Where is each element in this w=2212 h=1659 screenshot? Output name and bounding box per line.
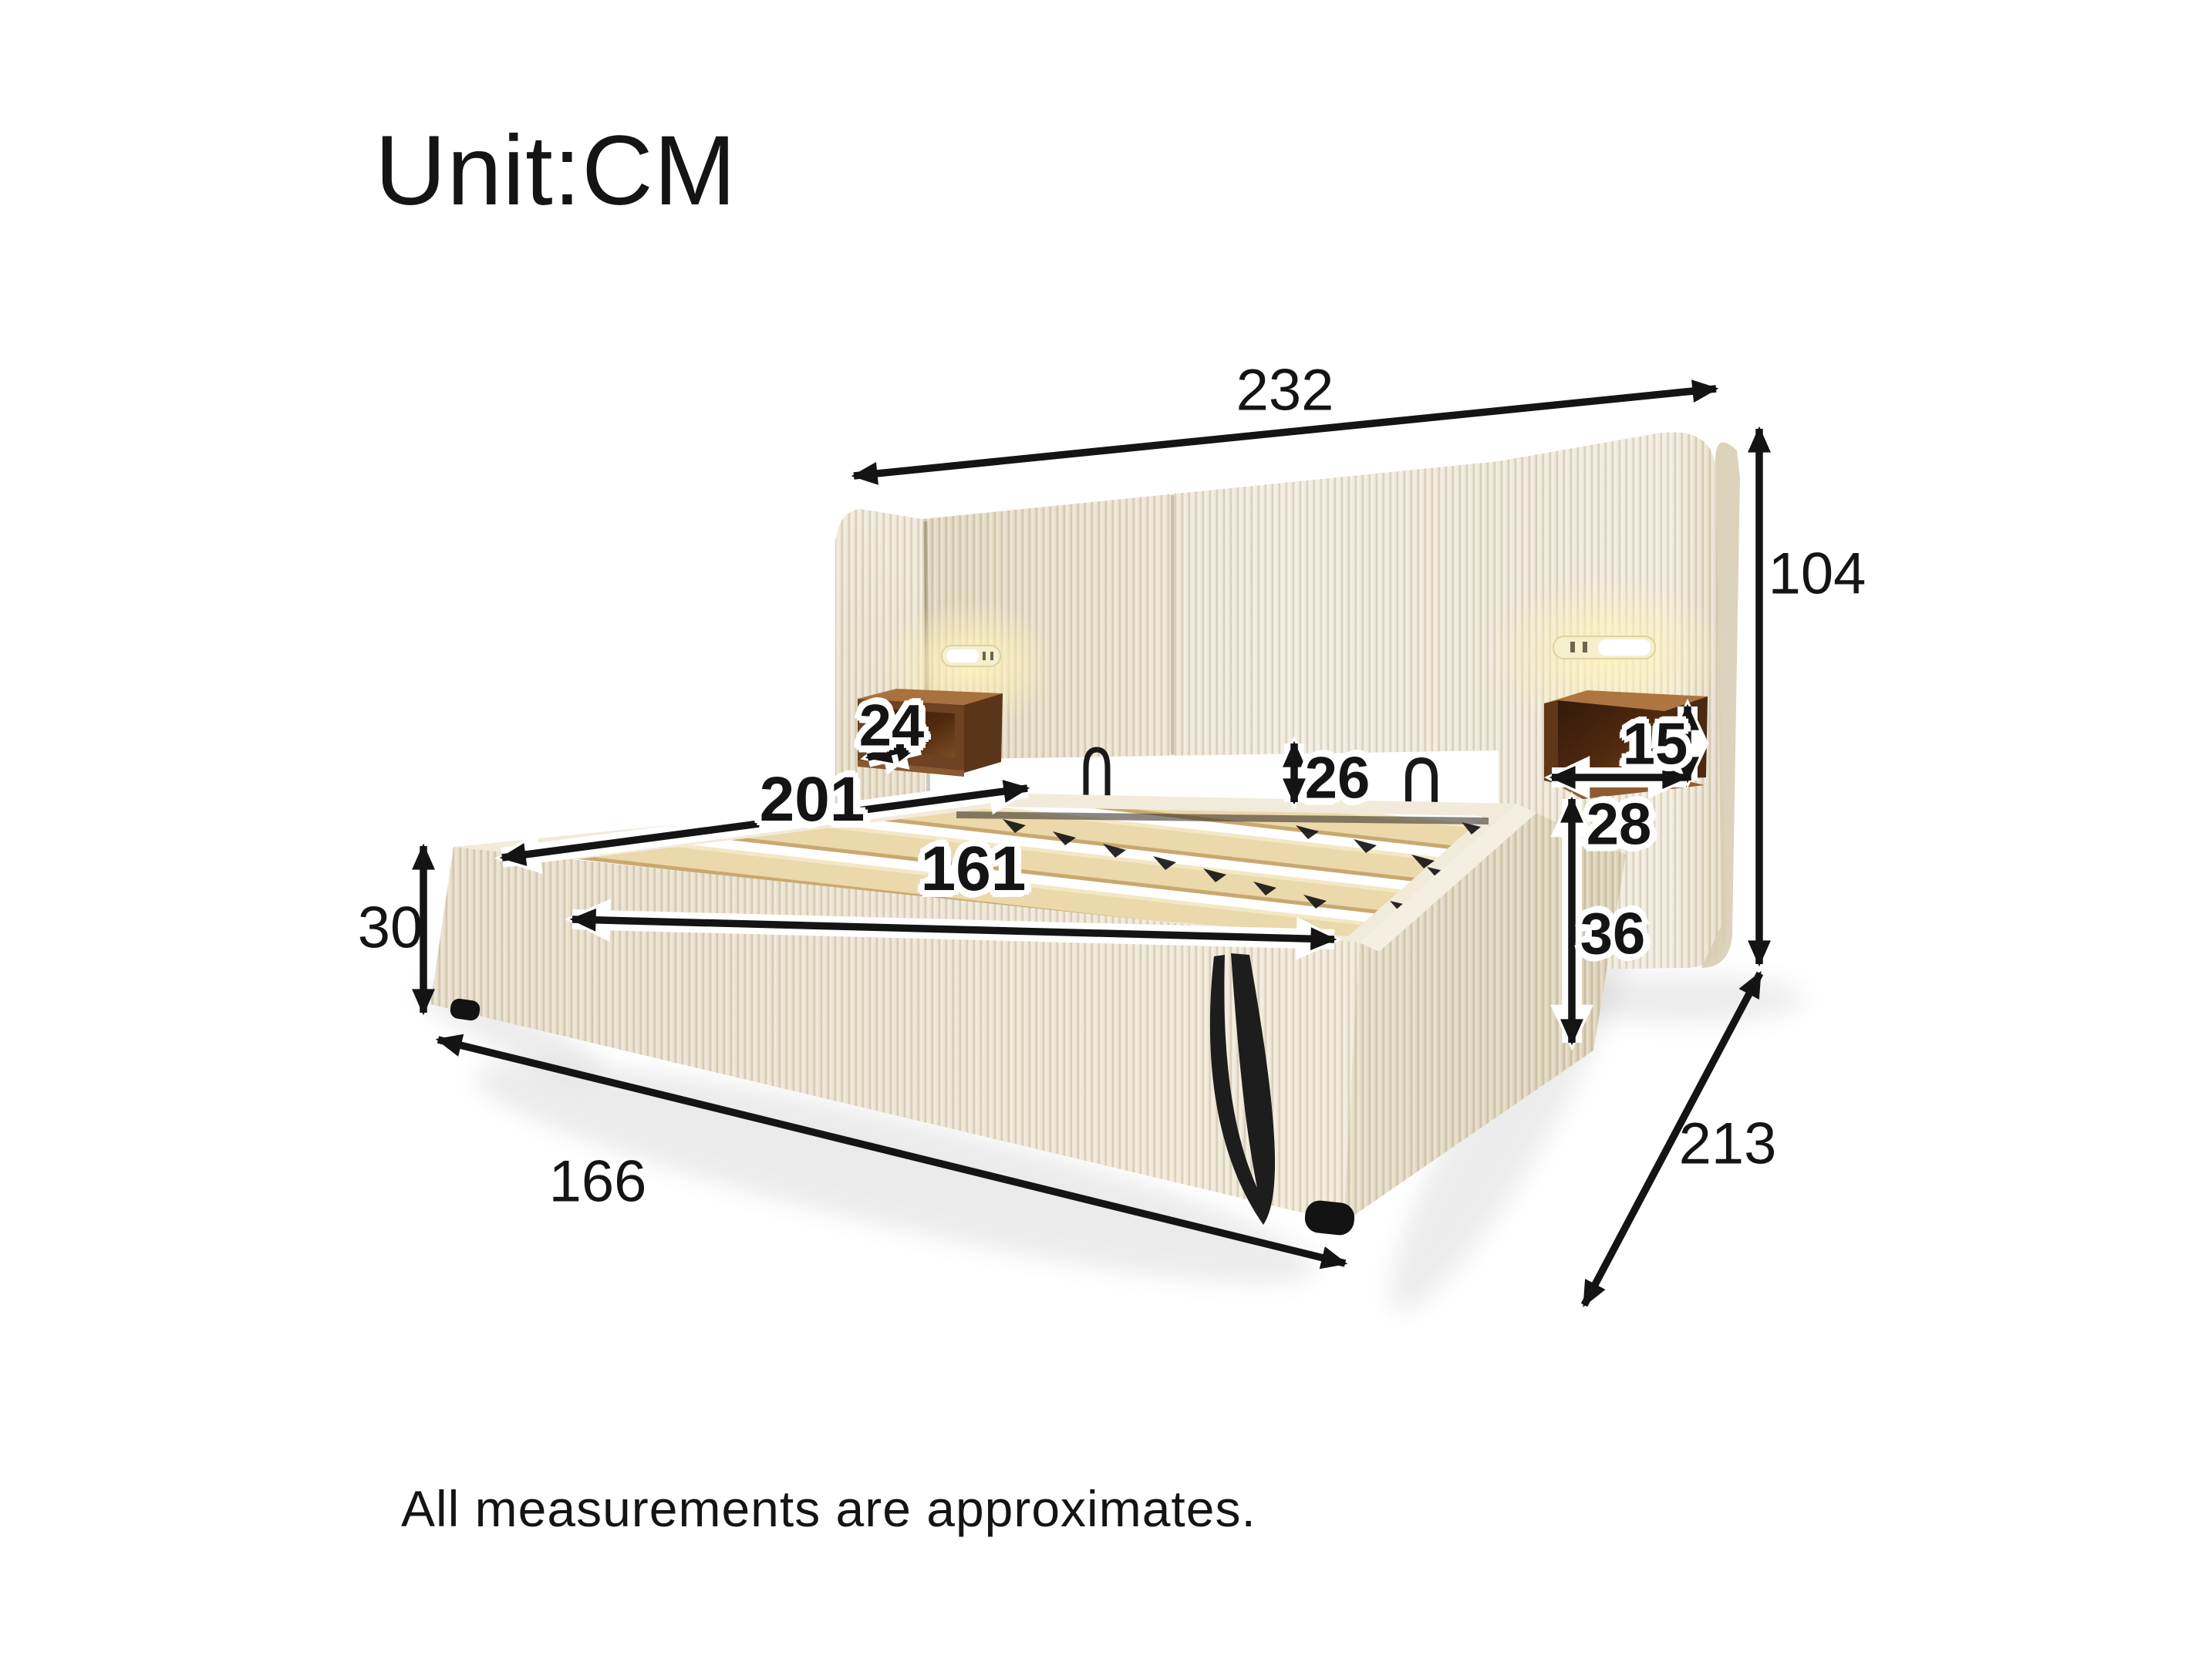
dim-base-width-label: 166 — [549, 1148, 647, 1216]
dimension-diagram: Unit:CM All measurements are approximate… — [0, 0, 2212, 1659]
dim-side-height-label: 36 — [1580, 901, 1646, 968]
dim-inner-width-label: 161 — [921, 833, 1027, 905]
dim-gap-height-label: 26 — [1305, 745, 1371, 812]
dim-headboard-height-label: 104 — [1769, 541, 1866, 608]
dim-overall-width-label: 232 — [1236, 357, 1334, 424]
dim-overall-depth-label: 213 — [1679, 1111, 1777, 1178]
left-reading-light — [942, 646, 1000, 666]
dim-shelf-depth-label: 24 — [859, 693, 925, 760]
right-reading-light — [1553, 636, 1655, 659]
dim-shelf-width-label: 28 — [1587, 791, 1652, 858]
unit-label: Unit:CM — [375, 114, 737, 228]
dim-shelf-height-label: 15 — [1623, 711, 1688, 778]
dim-inner-length-label: 201 — [760, 764, 865, 836]
dim-base-height-label: 30 — [358, 895, 423, 962]
footer-note: All measurements are approximates. — [401, 1479, 1256, 1538]
bed-illustration — [0, 0, 2212, 1659]
